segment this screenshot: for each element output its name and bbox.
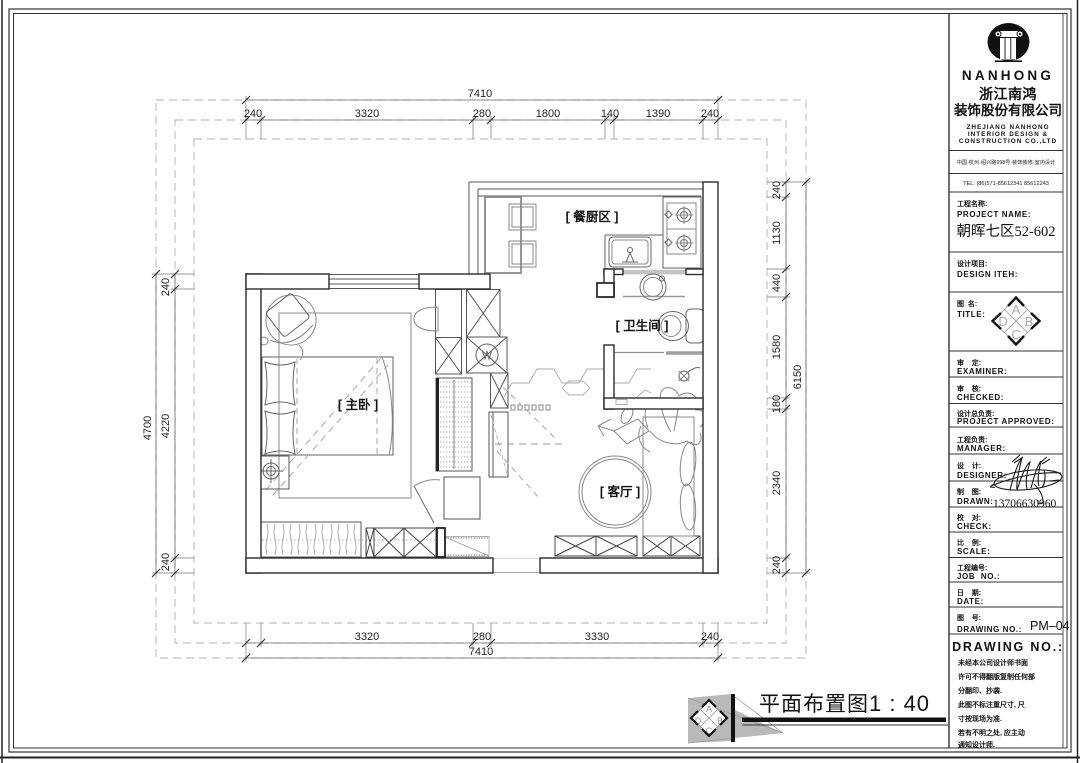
svg-text:中国·杭州·绍兴路998号·装饰装修·室内设计: 中国·杭州·绍兴路998号·装饰装修·室内设计 bbox=[957, 158, 1056, 166]
svg-text:2340: 2340 bbox=[771, 471, 783, 495]
svg-text:EXAMINER:: EXAMINER: bbox=[957, 367, 1007, 376]
svg-text:[ 餐厨区 ]: [ 餐厨区 ] bbox=[566, 209, 619, 224]
svg-text:工程编号:: 工程编号: bbox=[957, 563, 987, 572]
svg-text:240: 240 bbox=[160, 553, 172, 571]
svg-text:1800: 1800 bbox=[536, 108, 560, 120]
svg-text:140: 140 bbox=[601, 108, 619, 120]
svg-text:1130: 1130 bbox=[771, 221, 783, 245]
svg-text:装饰股份有限公司: 装饰股份有限公司 bbox=[953, 102, 1062, 118]
svg-text:A: A bbox=[1012, 302, 1021, 317]
svg-text:审 定:: 审 定: bbox=[957, 358, 981, 367]
svg-text:分翻印、抄袭.: 分翻印、抄袭. bbox=[958, 686, 1002, 695]
svg-text:设计项目:: 设计项目: bbox=[957, 259, 987, 268]
svg-text:DRAWING NO.:: DRAWING NO.: bbox=[957, 625, 1022, 634]
svg-text:CHECK:: CHECK: bbox=[957, 522, 992, 531]
svg-text:日 期:: 日 期: bbox=[957, 588, 981, 597]
svg-text:比 例:: 比 例: bbox=[957, 538, 981, 547]
svg-text:1390: 1390 bbox=[646, 108, 670, 120]
svg-text:[ 主卧 ]: [ 主卧 ] bbox=[338, 397, 378, 412]
svg-text:180: 180 bbox=[771, 395, 783, 413]
svg-text:240: 240 bbox=[701, 108, 719, 120]
svg-text:ZHEJIANG NANHONG: ZHEJIANG NANHONG bbox=[966, 124, 1049, 131]
svg-text:工程负责:: 工程负责: bbox=[957, 435, 987, 444]
svg-text:PROJECT NAME:: PROJECT NAME: bbox=[957, 210, 1031, 219]
svg-text:平面布置图: 平面布置图 bbox=[759, 693, 869, 716]
svg-text:3320: 3320 bbox=[355, 108, 379, 120]
svg-text:通知设计师.: 通知设计师. bbox=[958, 740, 995, 749]
svg-text:MANAGER:: MANAGER: bbox=[957, 444, 1006, 453]
svg-text:JOB NO.:: JOB NO.: bbox=[957, 572, 1000, 581]
svg-text:1 : 40: 1 : 40 bbox=[869, 691, 930, 716]
svg-text:NANHONG: NANHONG bbox=[962, 68, 1054, 83]
svg-text:1580: 1580 bbox=[771, 335, 783, 359]
svg-text:校 对:: 校 对: bbox=[957, 513, 981, 522]
svg-text:图 名:: 图 名: bbox=[957, 299, 977, 308]
svg-text:DRAWING NO.:: DRAWING NO.: bbox=[952, 640, 1064, 654]
svg-text:制 图:: 制 图: bbox=[957, 487, 981, 496]
svg-text:4700: 4700 bbox=[142, 416, 154, 440]
svg-text:DRAWN:: DRAWN: bbox=[957, 497, 993, 506]
svg-text:PM–04: PM–04 bbox=[1030, 619, 1070, 633]
svg-text:寸按现场为准.: 寸按现场为准. bbox=[958, 714, 1002, 723]
svg-text:13706630960: 13706630960 bbox=[993, 498, 1057, 510]
svg-text:CONSTRUCTION CO.,LTD: CONSTRUCTION CO.,LTD bbox=[959, 138, 1057, 145]
svg-text:3320: 3320 bbox=[355, 631, 379, 643]
svg-text:INTERIOR DESIGN &: INTERIOR DESIGN & bbox=[968, 131, 1048, 138]
svg-text:240: 240 bbox=[771, 556, 783, 574]
svg-text:TEL: (86)571-85612341 85612243: TEL: (86)571-85612341 85612243 bbox=[963, 181, 1049, 187]
svg-text:DESIGNER:: DESIGNER: bbox=[957, 471, 1007, 480]
svg-text:未经本公司设计师书面: 未经本公司设计师书面 bbox=[958, 658, 1028, 667]
svg-text:许可不得翻版复制任何部: 许可不得翻版复制任何部 bbox=[958, 672, 1035, 681]
svg-text:设 计:: 设 计: bbox=[957, 461, 981, 470]
svg-text:图 号:: 图 号: bbox=[957, 613, 981, 622]
svg-text:此图不标注重尺寸, 尺: 此图不标注重尺寸, 尺 bbox=[958, 700, 1025, 709]
svg-text:[ 卫生间 ]: [ 卫生间 ] bbox=[616, 318, 669, 333]
svg-text:280: 280 bbox=[473, 108, 491, 120]
svg-text:A: A bbox=[706, 704, 712, 714]
svg-text:4220: 4220 bbox=[160, 414, 172, 438]
svg-text:440: 440 bbox=[771, 274, 783, 292]
svg-text:PROJECT APPROVED:: PROJECT APPROVED: bbox=[957, 417, 1054, 426]
svg-text:280: 280 bbox=[473, 631, 491, 643]
svg-text:朝晖七区52-602: 朝晖七区52-602 bbox=[956, 223, 1055, 240]
svg-text:[ 客厅 ]: [ 客厅 ] bbox=[600, 484, 640, 499]
svg-text:浙江南鸿: 浙江南鸿 bbox=[979, 86, 1037, 102]
svg-text:工程名称:: 工程名称: bbox=[957, 199, 987, 208]
svg-text:240: 240 bbox=[244, 108, 262, 120]
svg-text:审 核:: 审 核: bbox=[957, 384, 981, 393]
svg-text:6150: 6150 bbox=[792, 365, 804, 389]
svg-text:240: 240 bbox=[160, 278, 172, 296]
svg-text:若有不明之处, 应主动: 若有不明之处, 应主动 bbox=[958, 728, 1025, 737]
svg-text:SCALE:: SCALE: bbox=[957, 547, 990, 556]
svg-text:240: 240 bbox=[701, 631, 719, 643]
svg-text:7410: 7410 bbox=[468, 88, 492, 100]
svg-text:240: 240 bbox=[771, 181, 783, 199]
svg-text:TITLE:: TITLE: bbox=[957, 310, 985, 319]
svg-text:CHECKED:: CHECKED: bbox=[957, 393, 1004, 402]
svg-text:DATE:: DATE: bbox=[957, 597, 984, 606]
svg-text:DESIGN ITEH:: DESIGN ITEH: bbox=[957, 270, 1018, 279]
svg-text:7410: 7410 bbox=[469, 646, 493, 658]
svg-text:3330: 3330 bbox=[585, 631, 609, 643]
